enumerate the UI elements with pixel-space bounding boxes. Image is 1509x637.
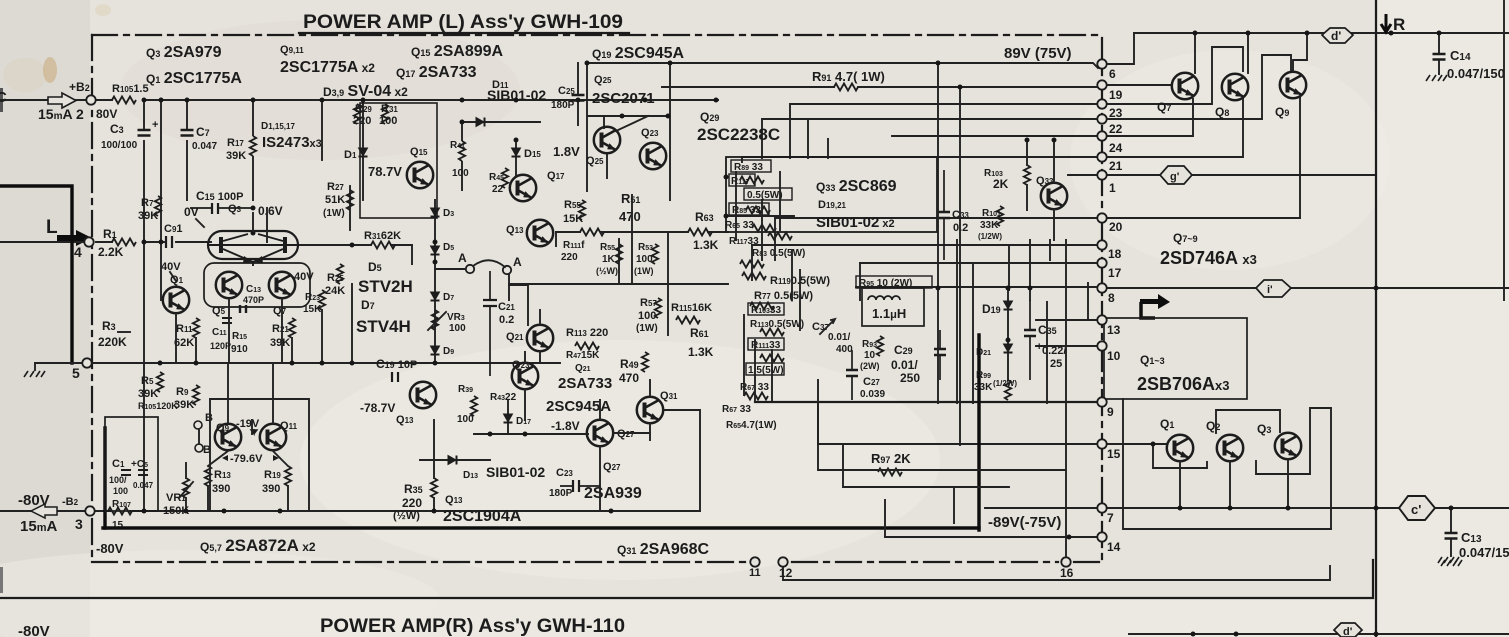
svg-text:-1.8V: -1.8V — [551, 419, 580, 433]
svg-text:-B2: -B2 — [62, 496, 79, 508]
svg-text:C29: C29 — [894, 343, 913, 357]
svg-text:Q3: Q3 — [1257, 422, 1271, 436]
svg-text:Q1 2SC1775A: Q1 2SC1775A — [146, 70, 242, 87]
svg-text:21: 21 — [1109, 159, 1123, 173]
svg-text:100: 100 — [113, 486, 128, 496]
svg-text:R1051.5: R1051.5 — [112, 83, 149, 95]
svg-text:0.047/15: 0.047/15 — [1459, 545, 1509, 560]
svg-text:24K: 24K — [325, 285, 345, 297]
svg-text:24: 24 — [1109, 141, 1123, 155]
svg-text:2SC945A: 2SC945A — [546, 398, 611, 415]
svg-text:100/100: 100/100 — [101, 140, 138, 151]
svg-text:2SD746A x3: 2SD746A x3 — [1160, 248, 1257, 268]
svg-text:Q27: Q27 — [603, 461, 621, 473]
svg-text:POWER AMP (L) Ass'y GWH-109: POWER AMP (L) Ass'y GWH-109 — [303, 12, 623, 33]
svg-text:Q1~3: Q1~3 — [1140, 353, 1165, 367]
svg-text:10: 10 — [864, 350, 876, 361]
svg-text:40V: 40V — [294, 271, 314, 283]
svg-text:0.047: 0.047 — [133, 481, 154, 490]
svg-text:390: 390 — [262, 483, 280, 495]
svg-text:89V (75V): 89V (75V) — [1004, 45, 1072, 62]
svg-text:390: 390 — [212, 483, 230, 495]
svg-text:80V: 80V — [96, 107, 117, 121]
svg-text:1K: 1K — [602, 254, 616, 265]
svg-text:19: 19 — [1109, 88, 1123, 102]
svg-text:C21: C21 — [498, 301, 515, 313]
svg-text:2SA733: 2SA733 — [558, 375, 612, 392]
svg-text:Q5: Q5 — [212, 305, 226, 317]
svg-text:D19: D19 — [982, 302, 1001, 316]
svg-text:C15 100P: C15 100P — [196, 189, 243, 203]
svg-text:D19,21: D19,21 — [818, 199, 847, 211]
svg-text:C: C — [0, 89, 7, 106]
svg-text:-89V(-75V): -89V(-75V) — [988, 514, 1061, 531]
svg-text:R89 33: R89 33 — [734, 162, 763, 173]
svg-text:40V: 40V — [161, 261, 181, 273]
svg-text:13: 13 — [1107, 323, 1121, 337]
svg-text:Q11: Q11 — [280, 420, 298, 432]
svg-text:C1: C1 — [112, 458, 125, 470]
svg-text:12: 12 — [779, 566, 793, 580]
svg-text:R29: R29 — [355, 103, 372, 115]
svg-text:0.5(5W): 0.5(5W) — [747, 190, 783, 201]
svg-text:C27: C27 — [863, 376, 880, 388]
svg-text:20: 20 — [1109, 220, 1123, 234]
svg-text:1.3K: 1.3K — [693, 238, 719, 252]
svg-text:1.8V: 1.8V — [553, 144, 580, 159]
svg-text:Q23: Q23 — [512, 359, 530, 371]
svg-text:B: B — [205, 412, 213, 424]
svg-text:Q31: Q31 — [660, 390, 678, 402]
svg-text:400: 400 — [836, 344, 853, 355]
svg-text:62K: 62K — [174, 337, 194, 349]
svg-text:R4715K: R4715K — [566, 350, 600, 361]
svg-text:Q8: Q8 — [1215, 105, 1229, 119]
svg-text:51K: 51K — [325, 194, 345, 206]
svg-text:0.039: 0.039 — [860, 389, 885, 400]
svg-text:16: 16 — [1060, 566, 1074, 580]
svg-text:2SC1904A: 2SC1904A — [443, 508, 522, 525]
svg-text:220: 220 — [353, 115, 371, 127]
svg-text:22: 22 — [1109, 122, 1123, 136]
svg-text:D15: D15 — [524, 148, 541, 160]
svg-text:Q9: Q9 — [1275, 105, 1289, 119]
svg-text:0.2: 0.2 — [499, 314, 514, 326]
svg-text:R11: R11 — [176, 323, 193, 335]
svg-text:+: + — [152, 119, 158, 131]
svg-text:Q9,11: Q9,11 — [280, 44, 304, 56]
svg-text:Q25: Q25 — [594, 74, 612, 86]
svg-text:2SC2238C: 2SC2238C — [697, 125, 780, 144]
svg-text:R49: R49 — [620, 357, 639, 371]
svg-text:i': i' — [1267, 284, 1273, 296]
svg-text:39K: 39K — [270, 337, 290, 349]
svg-text:-79.6V: -79.6V — [230, 453, 263, 465]
svg-text:470: 470 — [619, 371, 639, 385]
svg-text:+B2: +B2 — [69, 80, 90, 94]
svg-text:220K: 220K — [98, 335, 127, 349]
svg-text:0V: 0V — [184, 205, 199, 219]
svg-text:R67 33: R67 33 — [722, 404, 751, 415]
svg-text:R105120K: R105120K — [138, 401, 178, 411]
svg-text:c': c' — [1411, 502, 1421, 517]
svg-text:R113 220: R113 220 — [566, 327, 608, 339]
svg-text:D7: D7 — [361, 298, 375, 312]
svg-text:(1W): (1W) — [323, 208, 345, 219]
svg-text:9: 9 — [1107, 405, 1114, 419]
svg-text:L: L — [46, 217, 58, 238]
svg-text:R17: R17 — [227, 137, 244, 149]
svg-text:(½W): (½W) — [596, 266, 618, 276]
svg-text:1.3K: 1.3K — [688, 345, 714, 359]
svg-text:33K: 33K — [974, 382, 993, 393]
svg-text:R97 2K: R97 2K — [871, 451, 911, 466]
svg-text:-80V: -80V — [18, 492, 50, 509]
svg-text:120P: 120P — [210, 341, 231, 351]
svg-text:100: 100 — [452, 168, 469, 179]
svg-text:-78.7V: -78.7V — [360, 401, 395, 415]
svg-text:0.01/: 0.01/ — [828, 332, 850, 343]
svg-text:(1W): (1W) — [636, 323, 658, 334]
svg-text:C7: C7 — [196, 125, 210, 139]
svg-text:A: A — [513, 255, 522, 269]
svg-text:-80V: -80V — [18, 623, 50, 637]
svg-text:Q33: Q33 — [1036, 175, 1054, 187]
svg-text:(1W): (1W) — [634, 266, 654, 276]
svg-text:R5: R5 — [141, 375, 154, 387]
svg-text:78.7V: 78.7V — [368, 164, 402, 179]
svg-text:Q13: Q13 — [506, 224, 524, 236]
svg-text:R21: R21 — [272, 323, 289, 335]
svg-text:6: 6 — [1109, 67, 1116, 81]
svg-text:0.047: 0.047 — [192, 141, 217, 152]
svg-text:R11516K: R11516K — [671, 302, 712, 314]
svg-text:5: 5 — [72, 365, 80, 381]
svg-text:8: 8 — [1108, 291, 1115, 305]
svg-text:R35: R35 — [404, 482, 423, 496]
svg-text:A: A — [458, 251, 467, 265]
svg-text:Q21: Q21 — [506, 331, 524, 343]
svg-text:SIB01-02: SIB01-02 — [486, 464, 545, 480]
svg-text:10: 10 — [1107, 349, 1121, 363]
svg-text:R63: R63 — [695, 210, 714, 224]
svg-text:17: 17 — [1108, 266, 1122, 280]
svg-text:R61: R61 — [690, 326, 709, 340]
svg-text:470P: 470P — [243, 295, 264, 305]
svg-text:1: 1 — [1109, 181, 1116, 195]
svg-text:33K: 33K — [980, 220, 999, 231]
svg-text:7: 7 — [1107, 511, 1114, 525]
svg-text:R13: R13 — [214, 469, 231, 481]
svg-text:D5: D5 — [368, 260, 382, 274]
svg-text:0.6V: 0.6V — [258, 204, 283, 218]
svg-text:18: 18 — [1108, 247, 1122, 261]
svg-text:250: 250 — [900, 371, 920, 385]
svg-text:1.1μH: 1.1μH — [872, 306, 906, 321]
svg-text:Q27: Q27 — [617, 428, 635, 440]
svg-text:(2W): (2W) — [860, 361, 880, 371]
svg-text:15K: 15K — [303, 304, 322, 315]
svg-text:470: 470 — [619, 209, 641, 224]
svg-text:100: 100 — [457, 414, 474, 425]
svg-text:Q1: Q1 — [1160, 417, 1174, 431]
svg-text:R7: R7 — [141, 197, 154, 209]
svg-text:+: + — [1036, 341, 1042, 353]
svg-text:Q23: Q23 — [641, 127, 659, 139]
svg-text:D1: D1 — [344, 149, 357, 161]
svg-text:4: 4 — [74, 244, 82, 260]
svg-text:180P: 180P — [549, 488, 573, 499]
svg-text:g': g' — [1170, 171, 1180, 183]
svg-text:Q29: Q29 — [700, 110, 719, 124]
svg-text:0.047/150: 0.047/150 — [1447, 66, 1505, 81]
svg-text:R3162K: R3162K — [364, 230, 401, 242]
svg-text:Q17: Q17 — [547, 170, 565, 182]
svg-text:14: 14 — [1107, 540, 1121, 554]
svg-text:2K: 2K — [993, 177, 1009, 191]
svg-text:(1/2W): (1/2W) — [978, 232, 1002, 241]
svg-text:R65 33: R65 33 — [725, 220, 754, 231]
svg-text:1.5(5W): 1.5(5W) — [748, 365, 784, 376]
svg-text:100/: 100/ — [109, 475, 127, 485]
svg-text:220: 220 — [402, 496, 422, 510]
svg-text:C91: C91 — [164, 223, 183, 235]
svg-text:39K: 39K — [138, 210, 158, 222]
svg-text:R9: R9 — [176, 386, 189, 398]
svg-text:C3: C3 — [110, 122, 124, 136]
svg-text:0.01/: 0.01/ — [891, 358, 918, 372]
svg-text:R3: R3 — [102, 319, 116, 333]
svg-text:2.2K: 2.2K — [98, 245, 124, 259]
svg-text:0.22/: 0.22/ — [1042, 345, 1066, 357]
svg-text:2SA939: 2SA939 — [584, 485, 642, 502]
svg-text:220: 220 — [561, 252, 578, 263]
svg-text:-19V: -19V — [236, 418, 260, 430]
svg-text:R19: R19 — [264, 469, 281, 481]
svg-text:25: 25 — [1050, 358, 1062, 370]
svg-text:STV2H: STV2H — [358, 277, 413, 296]
svg-text:d': d' — [1331, 29, 1341, 43]
svg-text:-80V: -80V — [96, 541, 124, 556]
svg-text:R27: R27 — [327, 181, 344, 193]
svg-text:3: 3 — [75, 516, 83, 532]
svg-text:2SC1775A x2: 2SC1775A x2 — [280, 59, 375, 76]
svg-text:100: 100 — [379, 115, 397, 127]
svg-text:C23: C23 — [556, 467, 573, 479]
svg-text:(½W): (½W) — [393, 510, 420, 522]
svg-text:23: 23 — [1109, 106, 1123, 120]
svg-text:15: 15 — [1107, 447, 1121, 461]
svg-text:Q7: Q7 — [1157, 100, 1171, 114]
svg-text:Q13: Q13 — [445, 494, 463, 506]
svg-text:Q7: Q7 — [273, 305, 287, 317]
svg-text:(1/2W): (1/2W) — [993, 379, 1017, 388]
svg-text:Q2: Q2 — [1206, 419, 1220, 433]
svg-text:Q1: Q1 — [170, 274, 184, 286]
svg-text:Q25: Q25 — [586, 155, 604, 167]
svg-text:11: 11 — [749, 567, 761, 579]
svg-text:R77 0.5(5W): R77 0.5(5W) — [754, 290, 813, 302]
svg-text:Q7~9: Q7~9 — [1173, 231, 1198, 245]
svg-text:R31: R31 — [381, 103, 398, 115]
svg-text:Q3: Q3 — [228, 203, 242, 215]
svg-text:Q13: Q13 — [396, 414, 414, 426]
svg-text:d': d' — [1343, 626, 1353, 637]
svg-text:D1,15,17: D1,15,17 — [261, 121, 295, 132]
svg-text:POWER AMP(R) Ass'y GWH-110: POWER AMP(R) Ass'y GWH-110 — [320, 616, 625, 637]
svg-text:39K: 39K — [226, 150, 246, 162]
svg-text:910: 910 — [231, 344, 248, 355]
svg-text:STV4H: STV4H — [356, 317, 411, 336]
svg-text:C19 10P: C19 10P — [376, 357, 417, 371]
svg-text:180P: 180P — [551, 100, 575, 111]
svg-text:Q15: Q15 — [410, 146, 428, 158]
svg-text:R: R — [1393, 15, 1405, 34]
svg-text:100: 100 — [449, 323, 466, 334]
